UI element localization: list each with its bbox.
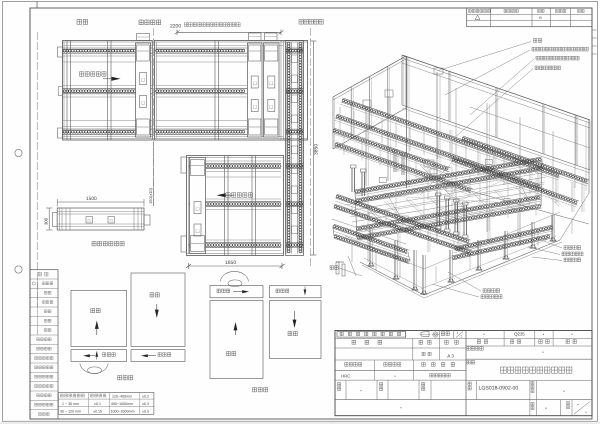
svg-text:150(±10): 150(±10) — [148, 187, 153, 204]
svg-text:1: 1 — [457, 331, 459, 335]
svg-text:120~400mm: 120~400mm — [112, 394, 132, 398]
svg-text:±0.15: ±0.15 — [93, 410, 102, 414]
svg-text:HRC: HRC — [341, 374, 350, 379]
svg-text:LGS018-0902-00: LGS018-0902-00 — [479, 386, 519, 392]
svg-text:±0.2: ±0.2 — [142, 394, 149, 398]
svg-text:1 ~ 30 mm: 1 ~ 30 mm — [62, 402, 79, 406]
svg-text:3850: 3850 — [314, 144, 320, 155]
svg-text:·: · — [559, 16, 560, 20]
svg-text:1000~2000mm: 1000~2000mm — [111, 410, 135, 414]
svg-text:A 3: A 3 — [447, 354, 454, 359]
svg-text:Q235: Q235 — [514, 331, 525, 336]
svg-text:300: 300 — [44, 217, 49, 225]
svg-text:□: □ — [110, 218, 113, 223]
svg-text:±0.3: ±0.3 — [142, 402, 149, 406]
svg-text:2: 2 — [461, 335, 463, 339]
svg-text:□: □ — [88, 218, 91, 223]
svg-text:·: · — [509, 16, 510, 20]
svg-text:1650: 1650 — [225, 260, 236, 266]
svg-text:2200: 2200 — [170, 24, 181, 30]
svg-text:30 ~ 120 mm: 30 ~ 120 mm — [60, 410, 81, 414]
svg-text:400~1000mm: 400~1000mm — [111, 402, 133, 406]
svg-text:·: · — [580, 16, 581, 20]
svg-text:±0.5: ±0.5 — [142, 410, 149, 414]
svg-text:±0.1: ±0.1 — [94, 402, 101, 406]
svg-text:1500: 1500 — [86, 196, 97, 202]
